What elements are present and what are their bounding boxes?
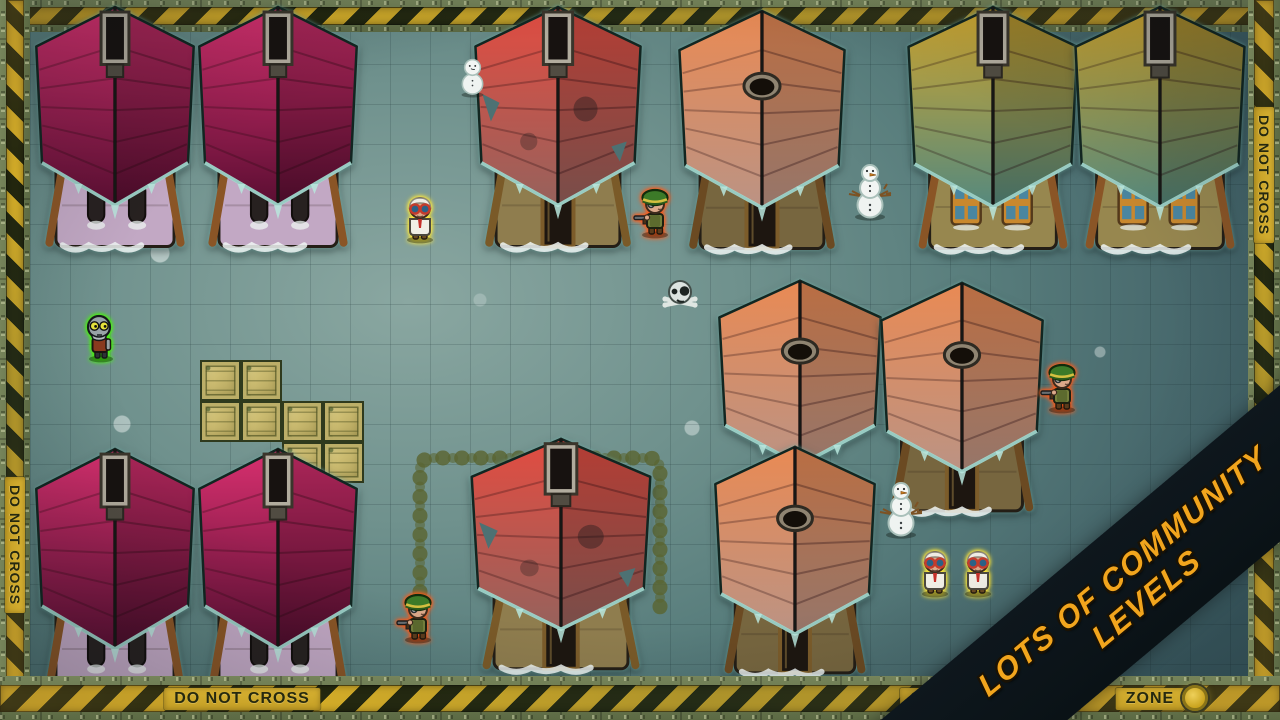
house-pink[interactable] bbox=[196, 4, 360, 254]
house-red[interactable] bbox=[468, 436, 654, 676]
do-not-cross-label-left: DO NOT CROSS bbox=[5, 477, 25, 613]
crate[interactable] bbox=[282, 401, 323, 442]
zone-label: ZONE bbox=[1116, 688, 1184, 710]
soldier-sprite[interactable] bbox=[1038, 362, 1086, 414]
snowman bbox=[452, 51, 493, 98]
rivet-strip bbox=[1275, 0, 1279, 720]
house-green[interactable] bbox=[1072, 4, 1248, 256]
house-green[interactable] bbox=[905, 4, 1081, 256]
crate[interactable] bbox=[200, 401, 241, 442]
house-red[interactable] bbox=[472, 4, 644, 254]
doctor-sprite[interactable] bbox=[954, 546, 1002, 598]
house-pink[interactable] bbox=[33, 446, 197, 698]
soldier-sprite[interactable] bbox=[631, 187, 679, 239]
snowman bbox=[875, 479, 927, 539]
game-stage: DO NOT CROSS CONTAGION AREA ZONE DO NOT … bbox=[0, 0, 1280, 720]
house-pink[interactable] bbox=[196, 446, 360, 698]
do-not-cross-label-right: DO NOT CROSS bbox=[1254, 107, 1274, 243]
zone-light bbox=[1182, 685, 1208, 711]
house-orange[interactable] bbox=[712, 444, 878, 680]
house-orange[interactable] bbox=[676, 8, 848, 256]
house-pink[interactable] bbox=[33, 4, 197, 254]
skull-icon bbox=[658, 278, 702, 312]
rivet-strip bbox=[1249, 0, 1253, 720]
crate[interactable] bbox=[323, 401, 364, 442]
do-not-cross-label-bottom: DO NOT CROSS bbox=[164, 688, 320, 710]
soldier-sprite[interactable] bbox=[394, 592, 442, 644]
zombie-sprite[interactable] bbox=[77, 312, 125, 364]
doctor-sprite[interactable] bbox=[396, 192, 444, 244]
crate[interactable] bbox=[241, 401, 282, 442]
rivet-strip bbox=[25, 0, 29, 720]
rivet-strip bbox=[0, 715, 1280, 719]
snowman bbox=[844, 161, 896, 221]
doctor-sprite[interactable] bbox=[911, 546, 959, 598]
crate[interactable] bbox=[200, 360, 241, 401]
crate[interactable] bbox=[241, 360, 282, 401]
